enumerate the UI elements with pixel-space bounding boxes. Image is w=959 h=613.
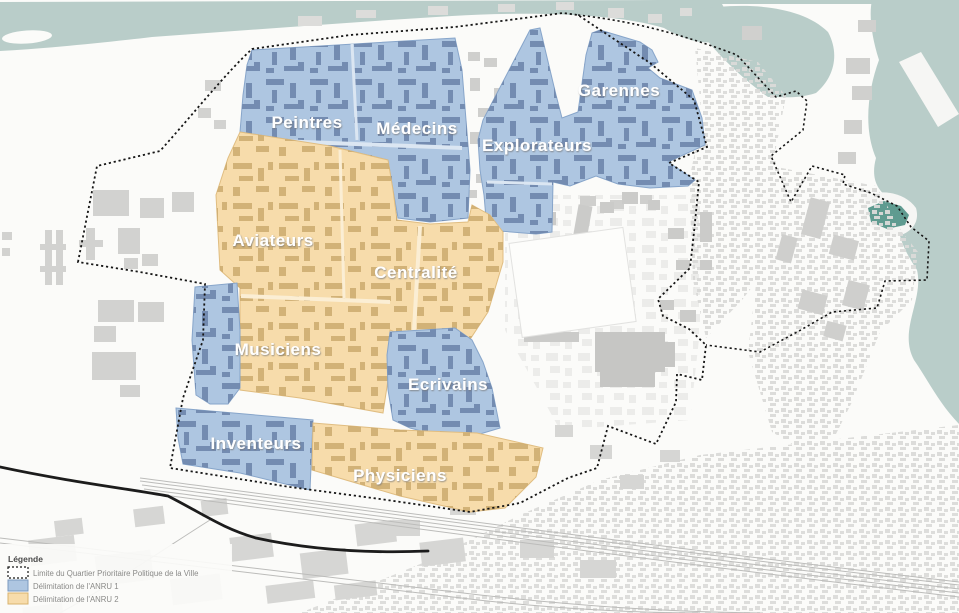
zone-label-garennes: Garennes <box>578 81 660 100</box>
map-page: Peintres Médecins Garennes Explorateurs … <box>0 0 959 613</box>
legend-swatch-anru2 <box>8 593 28 604</box>
zone-label-peintres: Peintres <box>271 113 342 132</box>
legend: Légende Limite du Quartier Prioritaire P… <box>0 544 232 613</box>
zone-label-aviateurs: Aviateurs <box>232 231 313 250</box>
legend-item-anru1: Délimitation de l'ANRU 1 <box>33 582 119 591</box>
legend-swatch-anru1 <box>8 580 28 591</box>
legend-swatch-dotted-boundary <box>8 567 28 578</box>
zone-label-explorateurs: Explorateurs <box>482 136 592 155</box>
legend-title: Légende <box>8 554 43 564</box>
zone-label-inventeurs: Inventeurs <box>211 434 302 453</box>
zone-small-west-strip <box>192 283 240 404</box>
zone-label-medecins: Médecins <box>376 119 457 138</box>
legend-item-anru2: Délimitation de l'ANRU 2 <box>33 595 119 604</box>
zone-label-musiciens: Musiciens <box>235 340 322 359</box>
city-map-canvas: Peintres Médecins Garennes Explorateurs … <box>0 0 959 613</box>
zone-label-centralite: Centralité <box>374 263 457 282</box>
zone-label-physiciens: Physiciens <box>353 466 447 485</box>
open-field <box>509 227 636 337</box>
zone-label-ecrivains: Ecrivains <box>408 375 488 394</box>
legend-item-limite: Limite du Quartier Prioritaire Politique… <box>33 569 198 578</box>
